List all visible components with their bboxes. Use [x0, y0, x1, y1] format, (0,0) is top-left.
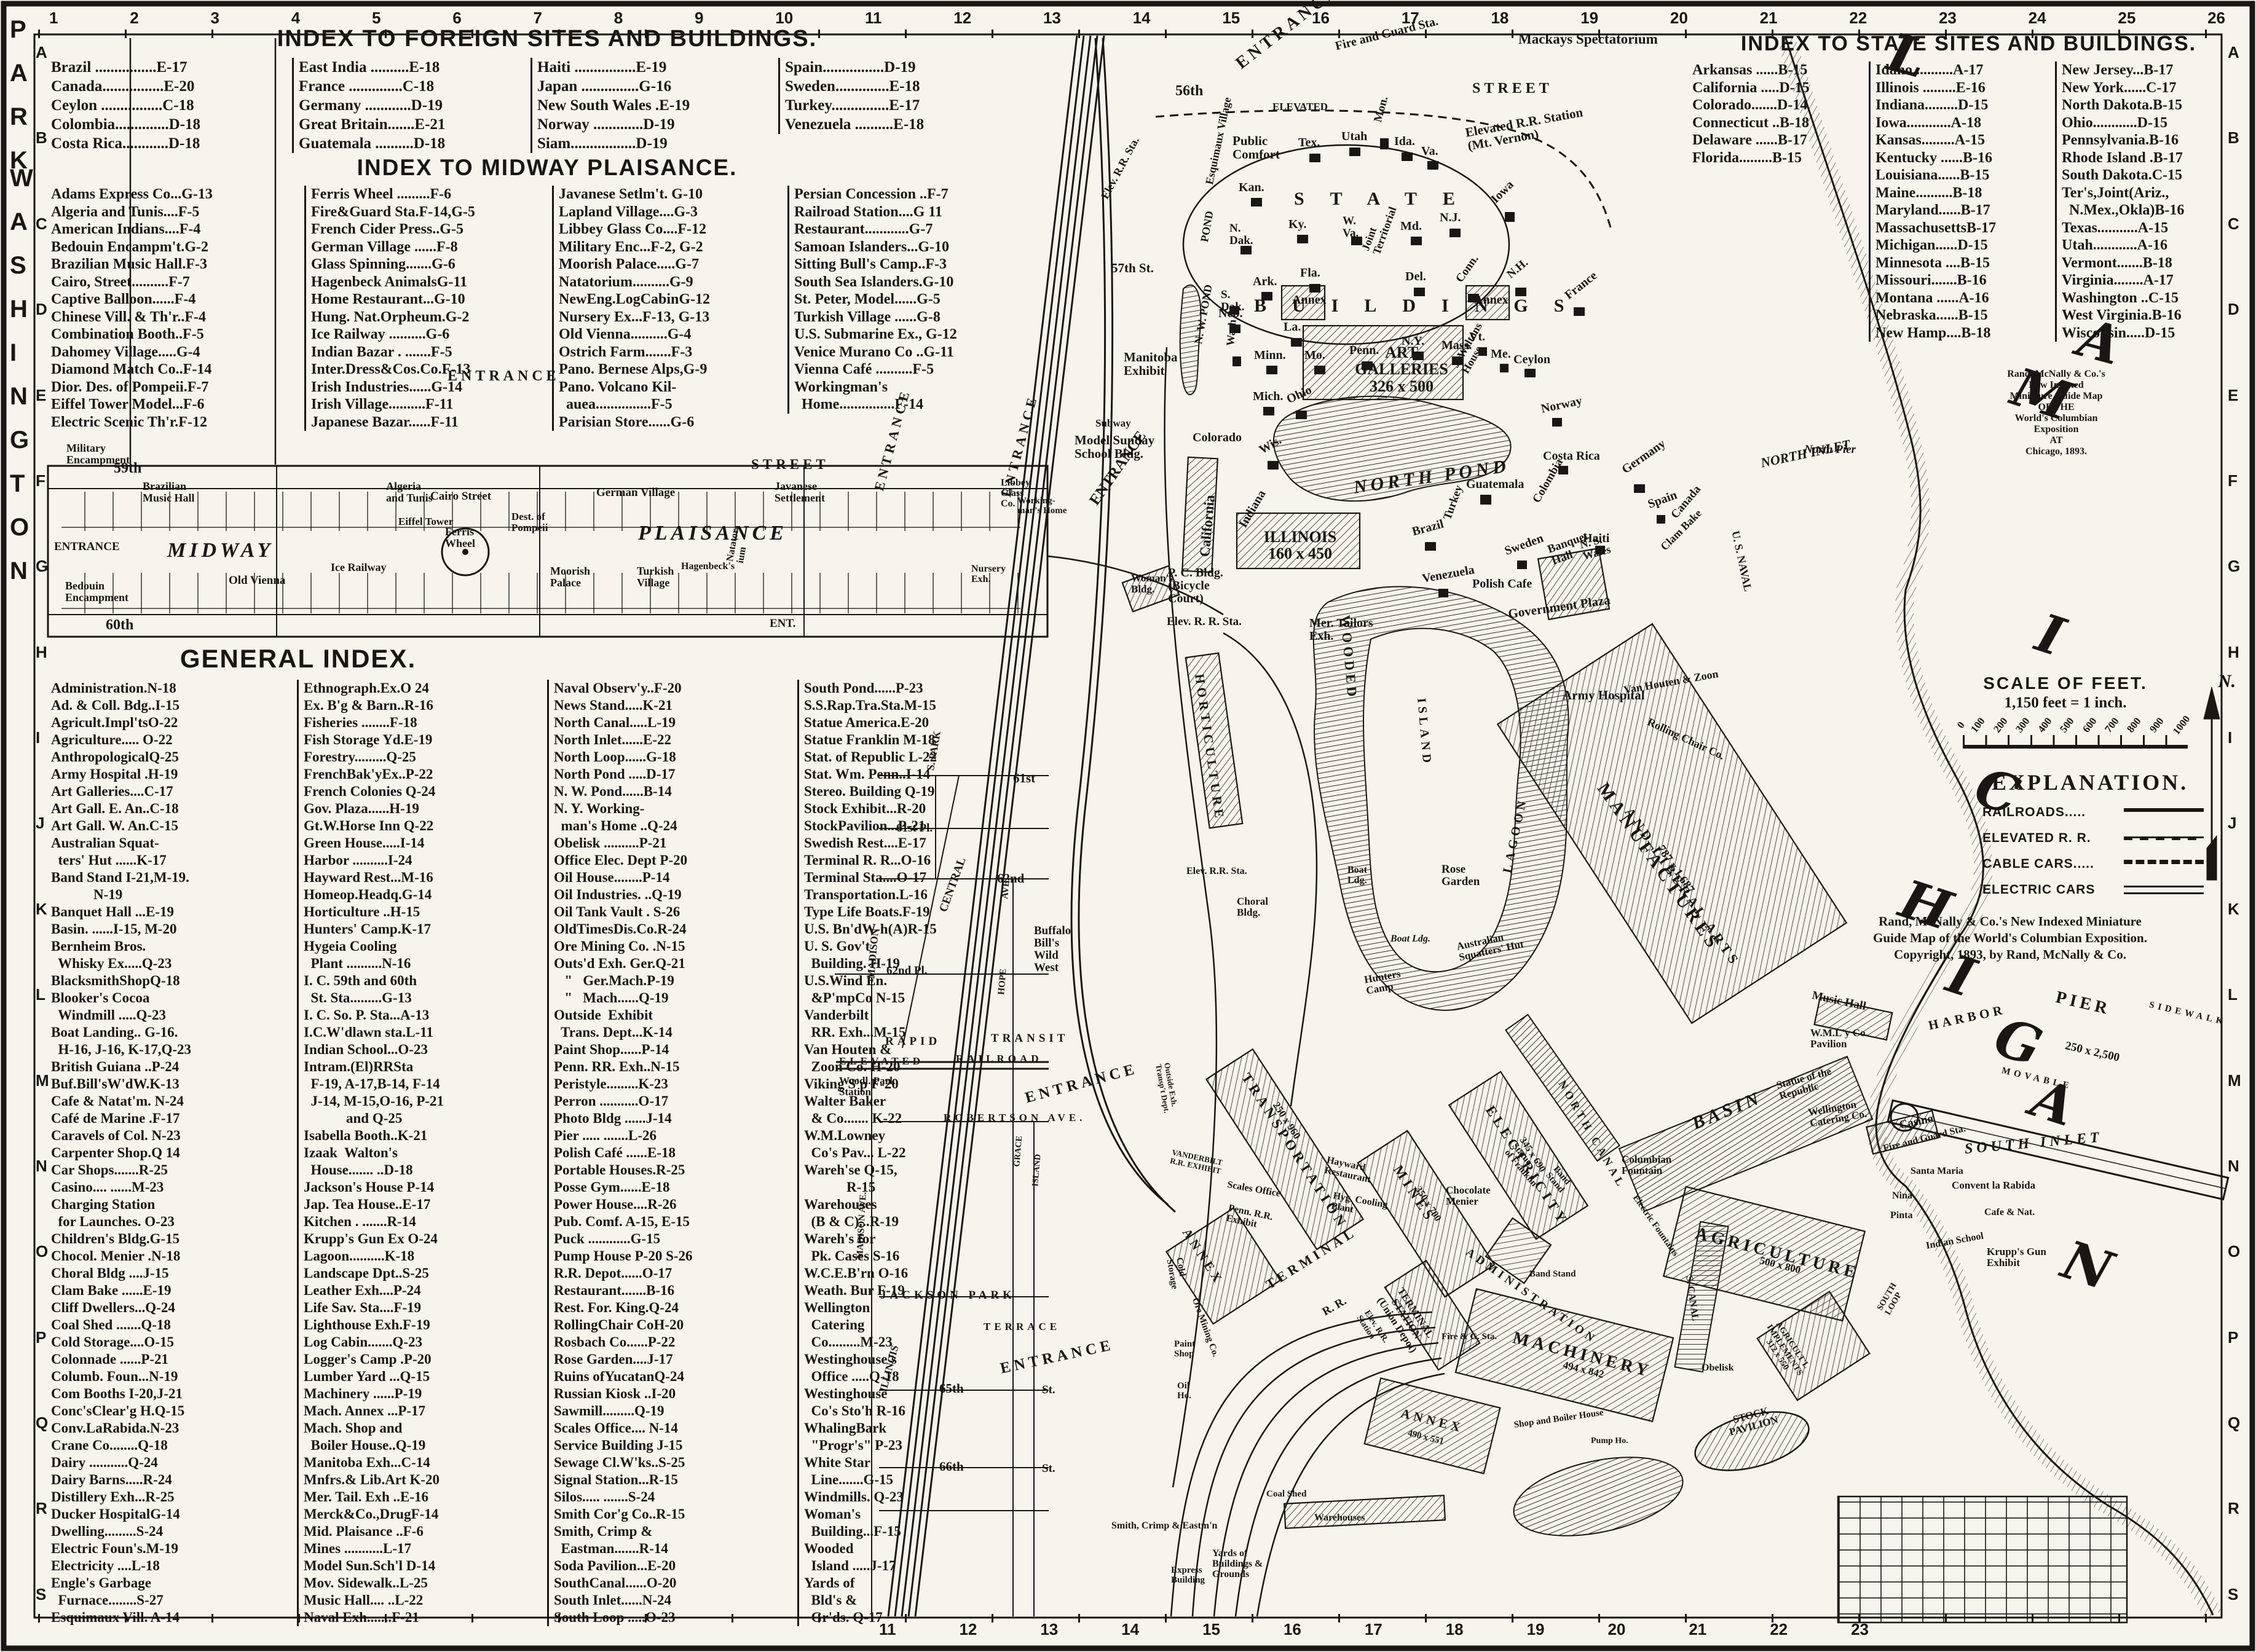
map-label: Warehouses [1314, 1513, 1365, 1524]
map-label: Javanese Settlement [775, 481, 825, 504]
index-entry: Administration.N-18 [46, 680, 297, 697]
index-entry: France ..............C-18 [294, 77, 530, 96]
index-entry: Crane Co........Q-18 [46, 1437, 297, 1454]
map-title-line: Chicago, 1893. [1856, 446, 2256, 457]
index-entry: German Village ......F-8 [306, 238, 552, 256]
grid-letter: R [2228, 1499, 2241, 1518]
grid-number: 18 [1491, 9, 1509, 28]
map-label: ILLINOIS 160 x 450 [1260, 529, 1340, 562]
index-entry: Windmills. Q-23 [799, 1489, 1045, 1506]
grid-number: 19 [1580, 9, 1598, 28]
index-entry: Utah............A-16 [2057, 237, 2241, 254]
index-entry: Landscape Dpt..S-25 [299, 1265, 547, 1282]
index-entry: " Mach......Q-19 [549, 989, 797, 1007]
index-entry: Connecticut ..B-18 [1687, 114, 1869, 132]
state-index-title: INDEX TO STATE SITES AND BUILDINGS. [1687, 32, 2250, 56]
index-entry: Mov. Sidewalk..L-25 [299, 1575, 547, 1592]
index-entry: Mines ...........L-17 [299, 1540, 547, 1557]
index-entry: Art Gall. E. An..C-18 [46, 800, 297, 817]
park-letter: A [10, 60, 28, 87]
map-label: Express Building [1171, 1566, 1205, 1586]
index-entry: Home Restaurant...G-10 [306, 291, 552, 309]
general-index-title: GENERAL INDEX. [46, 644, 550, 674]
index-entry: Adams Express Co...G-13 [46, 186, 304, 203]
map-label: Guatemala [1466, 478, 1524, 491]
index-entry: U.S. Submarine Ex., G-12 [789, 326, 1038, 344]
index-entry: man's Home ..Q-24 [549, 817, 797, 835]
index-entry: Sawmill.........Q-19 [549, 1402, 797, 1420]
index-entry: Terminal R. R...O-16 [799, 852, 1045, 869]
index-entry: Ferris Wheel .........F-6 [306, 186, 552, 203]
state-index-col1: Arkansas ......B-15California .....D-15C… [1687, 61, 1869, 167]
scale-subtitle: 1,150 feet = 1 inch. [1930, 694, 2201, 712]
washington-letter: H [10, 296, 33, 323]
index-entry: Obelisk ..........P-21 [549, 835, 797, 852]
index-entry: Bernheim Bros. [46, 938, 297, 955]
index-entry: BlacksmithShopQ-18 [46, 972, 297, 989]
general-index-col1: Administration.N-18Ad. & Coll. Bdg..I-15… [46, 680, 297, 1626]
washington-letter: A [10, 208, 33, 236]
index-entry: Chinese Vill. & Th'r..F-4 [46, 309, 304, 326]
index-entry: Distillery Exh...R-25 [46, 1489, 297, 1506]
washington-letter: N [10, 383, 33, 411]
map-label: ELEVATED [839, 1056, 924, 1067]
index-entry: Bedouin Encampm't.G-2 [46, 238, 304, 256]
index-entry: Leather Exh....P-24 [299, 1282, 547, 1299]
index-entry: Homeop.Headq.G-14 [299, 886, 547, 903]
index-entry: W.C.E.B'rn O-16 [799, 1265, 1045, 1282]
index-entry: North Inlet......E-22 [549, 731, 797, 749]
index-entry: N. W. Pond......B-14 [549, 783, 797, 800]
grid-letter: J [2228, 814, 2241, 833]
index-entry: W.M.Lowney [799, 1127, 1045, 1144]
index-entry: Nebraska......B-15 [1871, 307, 2055, 324]
index-entry: Fisheries ........F-18 [299, 714, 547, 731]
foreign-index-col2: East India ..........E-18France ........… [292, 58, 530, 153]
foreign-index-col4: Spain................D-19Sweden.........… [778, 58, 1001, 134]
map-label: Utah [1341, 130, 1367, 143]
index-entry: Isabella Booth..K-21 [299, 1127, 547, 1144]
map-label: Oil Ho. [1177, 1382, 1191, 1401]
map-label: Working- man's Home [1017, 497, 1067, 516]
index-entry: Pub. Comf. A-15, E-15 [549, 1213, 797, 1230]
park-letter: R [10, 103, 28, 131]
index-entry: Eiffel Tower Model...F-6 [46, 396, 304, 414]
index-entry: FrenchBak'yEx..P-22 [299, 766, 547, 783]
index-entry: White Star [799, 1454, 1045, 1471]
index-entry: Spain................D-19 [780, 58, 1001, 77]
legend-symbol-icon [2124, 836, 2204, 840]
map-label: ENTRANCE [54, 541, 120, 553]
explanation-rows: RAILROADS..... ELEVATED R. R. CABLE CARS… [1982, 805, 2204, 897]
index-entry: Guatemala ..........D-18 [294, 134, 530, 153]
index-entry: Logger's Camp .P-20 [299, 1351, 547, 1368]
map-label: STREET [751, 457, 829, 472]
grid-number: 20 [1607, 1620, 1625, 1639]
index-entry: Brazil ................E-17 [46, 58, 292, 77]
index-entry: Office Elec. Dept P-20 [549, 852, 797, 869]
index-entry: Rest. For. King.Q-24 [549, 1299, 797, 1316]
index-entry: British Guiana ..P-24 [46, 1058, 297, 1076]
map-label: Buffalo Bill's Wild West [1034, 925, 1071, 974]
midway-index-col2: Ferris Wheel .........F-6Fire&Guard Sta.… [304, 186, 552, 431]
grid-number: 22 [1849, 9, 1867, 28]
index-entry: Art Gall. W. An.C-15 [46, 817, 297, 835]
index-entry: Pano. Volcano Kil- [554, 379, 787, 396]
index-entry: Stereo. Building Q-19 [799, 783, 1045, 800]
index-entry: North Pond .....D-17 [549, 766, 797, 783]
map-label: Wash [1225, 319, 1239, 347]
map-label: German Village [596, 487, 675, 499]
index-entry: Pier ..... .......L-26 [549, 1127, 797, 1144]
index-entry: S.S.Rap.Tra.Sta.M-15 [799, 697, 1045, 714]
index-entry: Ceylon ................C-18 [46, 96, 292, 115]
map-label: Elev. R. R. Sta. [1167, 616, 1242, 628]
map-label: Cafe & Nat. [1984, 1208, 2035, 1218]
legend-label: ELECTRIC CARS [1982, 883, 2095, 897]
index-entry: Libbey Glass Co....F-12 [554, 221, 787, 238]
index-entry: Persian Concession ..F-7 [789, 186, 1038, 203]
map-label: AVE. [1001, 878, 1012, 900]
foreign-index-title: INDEX TO FOREIGN SITES AND BUILDINGS. [46, 26, 1048, 52]
index-entry: House....... ..D-18 [299, 1162, 547, 1179]
map-label: Ark. [1253, 275, 1277, 288]
index-entry: Japan ...............G-16 [532, 77, 778, 96]
grid-letter: N [2228, 1157, 2241, 1176]
index-entry: Japanese Bazar......F-11 [306, 414, 552, 431]
map-label: Woodl. Park Station [839, 1076, 896, 1098]
grid-number: 5 [372, 9, 381, 28]
map-label: St. [1042, 1384, 1055, 1396]
grid-number: 18 [1446, 1620, 1464, 1639]
index-entry: Louisiana......B-15 [1871, 167, 2055, 184]
map-label: Elev. R.R. Sta. [1186, 867, 1247, 877]
index-entry: Brazilian Music Hall.F-3 [46, 256, 304, 273]
index-entry: St. Sta.........G-13 [299, 989, 547, 1007]
index-entry: Dahomey Village.....G-4 [46, 344, 304, 361]
index-entry: Statue Franklin M-18 [799, 731, 1045, 749]
washington-letter: G [10, 427, 33, 454]
index-entry: Stat. of Republic L-22 [799, 749, 1045, 766]
index-entry: Russian Kiosk ..I-20 [549, 1385, 797, 1402]
map-label: Mackays Spectatorium [1518, 32, 1658, 47]
index-entry: Sewage Cl.W'ks..S-25 [549, 1454, 797, 1471]
index-entry: Samoan Islanders...G-10 [789, 238, 1038, 256]
map-label: 60th [106, 618, 133, 633]
index-entry: Delaware ......B-17 [1687, 132, 1869, 149]
map-label: ROBERTSON AVE. [944, 1112, 1086, 1123]
index-entry: Horticulture ..H-15 [299, 903, 547, 921]
index-entry: Dwelling.........S-24 [46, 1523, 297, 1540]
index-entry: Boat Landing.. G-16. [46, 1024, 297, 1041]
index-entry: Island .....J-17 [799, 1557, 1045, 1575]
index-entry: South Loop .....O-23 [549, 1609, 797, 1626]
index-entry: Great Britain.......E-21 [294, 115, 530, 134]
grid-number: 20 [1670, 9, 1688, 28]
index-entry: Krupp's Gun Ex O-24 [299, 1230, 547, 1248]
index-entry: Co's Sto'h R-16 [799, 1402, 1045, 1420]
index-entry: Sweden..............E-18 [780, 77, 1001, 96]
index-entry: Jackson's House P-14 [299, 1179, 547, 1196]
grid-number: 21 [1689, 1620, 1706, 1639]
index-entry: Railroad Station....G 11 [789, 203, 1038, 221]
washington-letter: N [10, 557, 33, 585]
index-entry: N-19 [46, 886, 297, 903]
index-entry: Stock Exhibit...R-20 [799, 800, 1045, 817]
legend-row: ELECTRIC CARS [1982, 883, 2204, 897]
index-entry: Ex. B'g & Barn..R-16 [299, 697, 547, 714]
index-entry: Puck ............G-15 [549, 1230, 797, 1248]
map-label: Paint Shop [1174, 1340, 1195, 1359]
map-label: Public Comfort [1233, 134, 1280, 161]
map-label: Colorado [1193, 431, 1242, 444]
index-entry: N.Mex.,Okla)B-16 [2057, 202, 2241, 219]
map-label: Polish Cafe [1472, 578, 1532, 591]
index-entry: New South Wales .E-19 [532, 96, 778, 115]
index-entry: Lapland Village....G-3 [554, 203, 787, 221]
index-entry: Australian Squat- [46, 835, 297, 852]
index-entry: News Stand.....K-21 [549, 697, 797, 714]
index-entry: Charging Station [46, 1196, 297, 1213]
index-entry: Conc'sClear'g H.Q-15 [46, 1402, 297, 1420]
index-entry: Wooded [799, 1540, 1045, 1557]
index-entry: Music Hall.... ..L-22 [299, 1592, 547, 1609]
map-label: Boat Ldg. [1390, 934, 1430, 945]
index-entry: Home...............F-14 [789, 396, 1038, 414]
map-label: S. Dak. [1221, 289, 1245, 313]
grid-letter: K [2228, 900, 2241, 919]
index-entry: Naval Exh.......F-21 [299, 1609, 547, 1626]
map-label: Ky. [1288, 218, 1306, 231]
grid-number: 14 [1133, 9, 1151, 28]
index-entry: "Progr's" P-23 [799, 1437, 1045, 1454]
index-entry: Co's Pav... L-22 [799, 1144, 1045, 1162]
grid-number: 6 [452, 9, 461, 28]
index-entry: U.S. Bn'dW-h(A)R-15 [799, 921, 1045, 938]
index-entry: Intram.(El)RRSta [299, 1058, 547, 1076]
index-entry: Soda Pavilion...E-20 [549, 1557, 797, 1575]
index-entry: Warehouses [799, 1196, 1045, 1213]
index-entry: Swedish Rest....E-17 [799, 835, 1045, 852]
index-entry: Viking S'p F-20 [799, 1076, 1045, 1093]
index-entry: " Ger.Mach.P-19 [549, 972, 797, 989]
map-label: Yards of Buildings & Grounds [1212, 1549, 1263, 1579]
map-label: Old Vienna [229, 575, 285, 587]
map-label: Va. [1421, 145, 1438, 158]
legend-symbol-icon [2124, 860, 2204, 869]
index-entry: Venice Murano Co ..G-11 [789, 344, 1038, 361]
index-entry: Electricity ....L-18 [46, 1557, 297, 1575]
index-entry: Lagoon..........K-18 [299, 1248, 547, 1265]
grid-number: 25 [2118, 9, 2136, 28]
index-entry: Portable Houses.R-25 [549, 1162, 797, 1179]
grid-number: 24 [2029, 9, 2046, 28]
map-label: Mich. [1253, 390, 1283, 403]
index-entry: Photo Bldg ......J-14 [549, 1110, 797, 1127]
grid-number: 26 [2207, 9, 2225, 28]
index-entry: Turkish Village ......G-8 [789, 309, 1038, 326]
index-entry: Mid. Plaisance ..F-6 [299, 1523, 547, 1540]
map-label: Woman's Bldg. [1131, 573, 1173, 595]
index-entry: Boiler House..Q-19 [299, 1437, 547, 1454]
index-entry: French Cider Press..G-5 [306, 221, 552, 238]
map-label: W. Va. [1343, 215, 1359, 240]
index-entry: Smith, Crimp & [549, 1523, 797, 1540]
index-entry: Natatorium..........G-9 [554, 273, 787, 291]
map-label: RAPID [885, 1036, 941, 1048]
index-entry: Stat. Wm. Penn..I-14 [799, 766, 1045, 783]
index-entry: Merck&Co.,DrugF-14 [299, 1506, 547, 1523]
grid-number: 3 [211, 9, 219, 28]
map-label: N.J. [1440, 211, 1461, 224]
index-entry: Cairo, Street..........F-7 [46, 273, 304, 291]
index-entry: OldTimesDis.Co.R-24 [549, 921, 797, 938]
index-entry: Cafe & Natat'm. N-24 [46, 1093, 297, 1110]
index-entry: Rose Garden....J-17 [549, 1351, 797, 1368]
index-entry: Line.......G-15 [799, 1471, 1045, 1489]
map-label: 66th [939, 1460, 964, 1473]
index-entry: Lumber Yard ...Q-15 [299, 1368, 547, 1385]
legend-symbol-icon [2124, 886, 2204, 894]
index-entry: Oil Tank Vault . S-26 [549, 903, 797, 921]
index-entry: Service Building J-15 [549, 1437, 797, 1454]
index-entry: Old Vienna..........G-4 [554, 326, 787, 344]
park-vertical-label: PARK [10, 16, 28, 175]
index-entry: Dior. Des. of Pompeii.F-7 [46, 379, 304, 396]
index-entry: Engle's Garbage [46, 1575, 297, 1592]
index-entry: Fire&Guard Sta.F-14,G-5 [306, 203, 552, 221]
map-label: Nina [1892, 1191, 1912, 1202]
map-label: Ice Railway [331, 562, 386, 573]
index-entry: Paint Shop......P-14 [549, 1041, 797, 1058]
index-entry: Windmill .....Q-23 [46, 1007, 297, 1024]
index-entry: Kansas.........A-15 [1871, 132, 2055, 149]
map-label: Algeria and Tunis [386, 481, 433, 504]
index-entry: Kentucky ......B-16 [1871, 149, 2055, 167]
index-entry: Canada................E-20 [46, 77, 292, 96]
map-label: JACKSON PARK [880, 1289, 1016, 1302]
index-entry: Gov. Plaza......H-19 [299, 800, 547, 817]
index-entry: Clam Bake ......E-19 [46, 1282, 297, 1299]
grid-letter: I [2228, 728, 2241, 747]
index-entry: Café de Marine .F-17 [46, 1110, 297, 1127]
index-entry: and Q-25 [299, 1110, 547, 1127]
index-entry: Blooker's Cocoa [46, 989, 297, 1007]
index-entry: Izaak Walton's [299, 1144, 547, 1162]
index-entry: AnthropologicalQ-25 [46, 749, 297, 766]
index-entry: New York......C-17 [2057, 79, 2241, 97]
index-entry: California .....D-15 [1687, 79, 1869, 97]
index-entry: Virginia........A-17 [2057, 272, 2241, 289]
map-label: Military Encampment [66, 442, 130, 466]
index-entry: Pennsylvania.B-16 [2057, 132, 2241, 149]
map-label: Ida. [1394, 135, 1415, 148]
index-entry: North Dakota.B-15 [2057, 96, 2241, 114]
index-entry: Ethnograph.Ex.O 24 [299, 680, 547, 697]
general-index-col2: Ethnograph.Ex.O 24Ex. B'g & Barn..R-16Fi… [297, 680, 547, 1626]
washington-letter: I [10, 339, 33, 367]
grid-number: 17 [1365, 1620, 1382, 1639]
index-entry: WhalingBark [799, 1420, 1045, 1437]
index-entry: Ore Mining Co. .N-15 [549, 938, 797, 955]
map-label: Tex. [1298, 136, 1320, 149]
foreign-index-col3: Haiti ................E-19Japan ........… [530, 58, 778, 153]
washington-vertical-label: WASHINGTON [10, 165, 33, 585]
north-arrow-label: N. [2218, 671, 2236, 692]
grid-number: 23 [1939, 9, 1957, 28]
midway-index-title: INDEX TO MIDWAY PLAISANCE. [46, 155, 1048, 181]
index-entry: Diamond Match Co..F-14 [46, 361, 304, 379]
index-entry: Wareh's for [799, 1230, 1045, 1248]
map-label: 56th [1175, 84, 1203, 99]
index-entry: Army Hospital .H-19 [46, 766, 297, 783]
map-label: Pinta [1890, 1211, 1912, 1221]
index-entry: Machinery ......P-19 [299, 1385, 547, 1402]
index-entry: Choral Bldg ....J-15 [46, 1265, 297, 1282]
index-entry: Statue America.E-20 [799, 714, 1045, 731]
index-entry: Hung. Nat.Orpheum.G-2 [306, 309, 552, 326]
index-entry: Oil House........P-14 [549, 869, 797, 886]
index-entry: Hunters' Camp.K-17 [299, 921, 547, 938]
index-entry: Peristyle.........K-23 [549, 1076, 797, 1093]
map-label: Fire & G. Sta. [1442, 1332, 1497, 1342]
grid-letter: F [2228, 471, 2241, 490]
map-label: STREET [1472, 81, 1553, 96]
map-label: Boat Ldg. [1347, 865, 1367, 886]
map-label: Smith, Crimp & Eastm'n [1111, 1521, 1217, 1532]
legend-symbol-icon [2124, 808, 2204, 817]
map-label: N. Dak. [1229, 222, 1253, 247]
map-label: PLAISANCE [638, 522, 787, 545]
index-entry: Outside Exhibit [549, 1007, 797, 1024]
grid-number: 9 [695, 9, 703, 28]
map-label: Del. [1405, 270, 1426, 283]
legend-row: RAILROADS..... [1982, 805, 2204, 820]
index-entry: R.R. Depot......O-17 [549, 1265, 797, 1282]
map-label: TRANSIT [991, 1032, 1068, 1045]
index-entry: Dairy Barns.....R-24 [46, 1471, 297, 1489]
index-entry: Log Cabin.......Q-23 [299, 1334, 547, 1351]
index-entry: I. C. 59th and 60th [299, 972, 547, 989]
index-entry: Green House.....I-14 [299, 835, 547, 852]
index-entry: Forestry.........Q-25 [299, 749, 547, 766]
index-entry: Indian School...O-23 [299, 1041, 547, 1058]
index-entry: South Sea Islanders.G-10 [789, 273, 1038, 291]
index-entry: Basin. ......I-15, M-20 [46, 921, 297, 938]
copyright-line: Rand, McNally & Co.'s New Indexed Miniat… [1801, 913, 2219, 930]
index-entry: Ice Railway ..........G-6 [306, 326, 552, 344]
copyright-block: Rand, McNally & Co.'s New Indexed Miniat… [1801, 913, 2219, 963]
grid-number: 11 [865, 9, 882, 28]
grid-letter: O [2228, 1242, 2241, 1261]
map-label: Turkish Village [637, 565, 674, 589]
index-entry: Sitting Bull's Camp..F-3 [789, 256, 1038, 273]
washington-letter: W [10, 165, 33, 192]
map-label: Ceylon [1513, 353, 1550, 366]
index-entry: Parisian Store......G-6 [554, 414, 787, 431]
grid-letter: P [2228, 1328, 2241, 1347]
index-entry: Yards of [799, 1575, 1045, 1592]
index-entry: Iowa............A-18 [1871, 114, 2055, 132]
map-label: W.M.L'y Co. Pavilion [1810, 1028, 1868, 1050]
index-entry: Esquimaux Vill. A-14 [46, 1609, 297, 1626]
index-entry: I. C. So. P. Sta...A-13 [299, 1007, 547, 1024]
index-entry: Coal Shed .......Q-18 [46, 1316, 297, 1334]
map-label: ART GALLERIES 326 x 500 [1352, 344, 1451, 395]
index-entry: NewEng.LogCabinG-12 [554, 291, 787, 309]
index-entry: Mnfrs.& Lib.Art K-20 [299, 1471, 547, 1489]
map-label: 57th St. [1111, 261, 1154, 275]
